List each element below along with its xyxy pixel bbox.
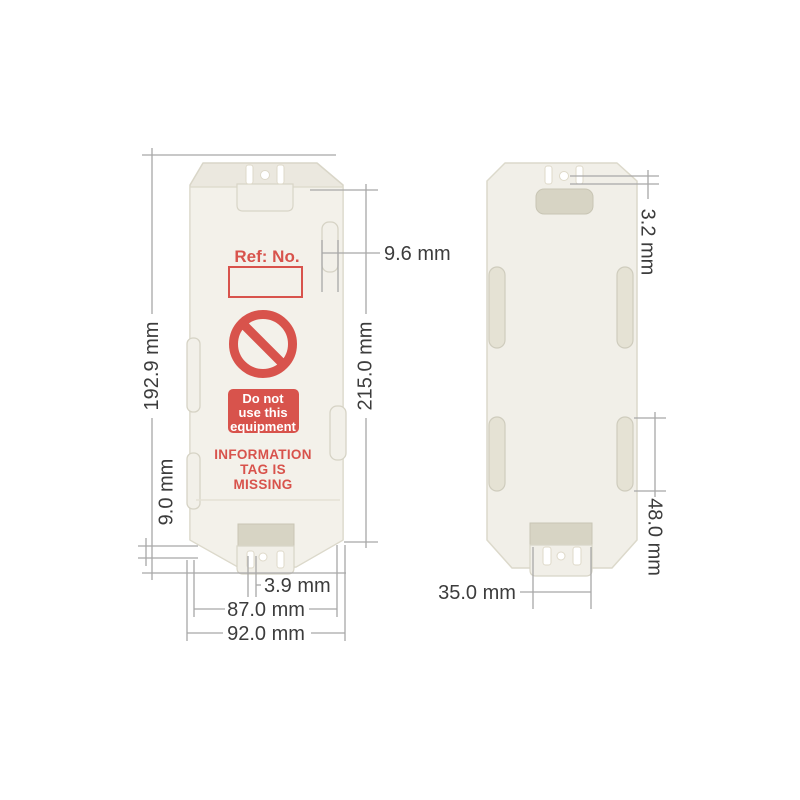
dimension-value: 215.0 mm	[354, 322, 376, 411]
strap-slot	[617, 267, 633, 348]
dimension-value: 48.0 mm	[644, 498, 666, 576]
fixing-slot	[277, 165, 284, 184]
dimension-value: 92.0 mm	[227, 623, 305, 645]
ref-no-label: Ref: No.	[234, 247, 299, 266]
fixing-slot	[545, 166, 552, 184]
front-tag-view: Ref: No. Do not use this equipment INFOR…	[187, 163, 346, 574]
dimension-value: 87.0 mm	[227, 599, 305, 621]
dimension-value: 192.9 mm	[141, 322, 163, 411]
hanging-slot	[536, 189, 593, 214]
warning-line: use this	[238, 405, 287, 420]
screw-hole	[557, 552, 565, 560]
back-tag-plate	[487, 163, 637, 568]
status-line: MISSING	[233, 477, 292, 492]
strap-slot	[489, 267, 505, 348]
product-dimension-diagram: Ref: No. Do not use this equipment INFOR…	[0, 0, 800, 800]
side-clip	[330, 406, 346, 460]
dimension-value: 35.0 mm	[438, 582, 516, 604]
side-clip	[187, 338, 200, 412]
warning-sign: Do not use this equipment	[228, 389, 299, 434]
status-line: TAG IS	[240, 462, 286, 477]
dimension-value: 3.9 mm	[264, 575, 331, 597]
back-tag-view	[487, 163, 637, 576]
strap-slot	[489, 417, 505, 491]
dimension-back-slot-length: 48.0 mm	[634, 412, 666, 576]
warning-line: equipment	[230, 419, 296, 434]
front-top-flap	[237, 184, 293, 211]
fixing-slot	[246, 165, 253, 184]
fixing-slot	[543, 547, 551, 565]
dimension-value: 9.6 mm	[384, 243, 451, 265]
fixing-slot	[576, 166, 583, 184]
back-bottom-recess	[530, 523, 592, 545]
status-line: INFORMATION	[214, 447, 312, 462]
dimension-value: 9.0 mm	[155, 459, 177, 526]
side-clip	[322, 222, 338, 272]
strap-slot	[617, 417, 633, 491]
screw-hole	[560, 172, 569, 181]
warning-line: Do not	[242, 391, 284, 406]
screw-hole	[261, 171, 270, 180]
fixing-slot	[573, 547, 581, 565]
dimension-drawing-canvas: Ref: No. Do not use this equipment INFOR…	[0, 0, 800, 800]
front-bottom-recess	[238, 524, 294, 546]
screw-hole	[259, 553, 267, 561]
dimension-value: 3.2 mm	[637, 209, 659, 276]
fixing-slot	[277, 551, 284, 568]
